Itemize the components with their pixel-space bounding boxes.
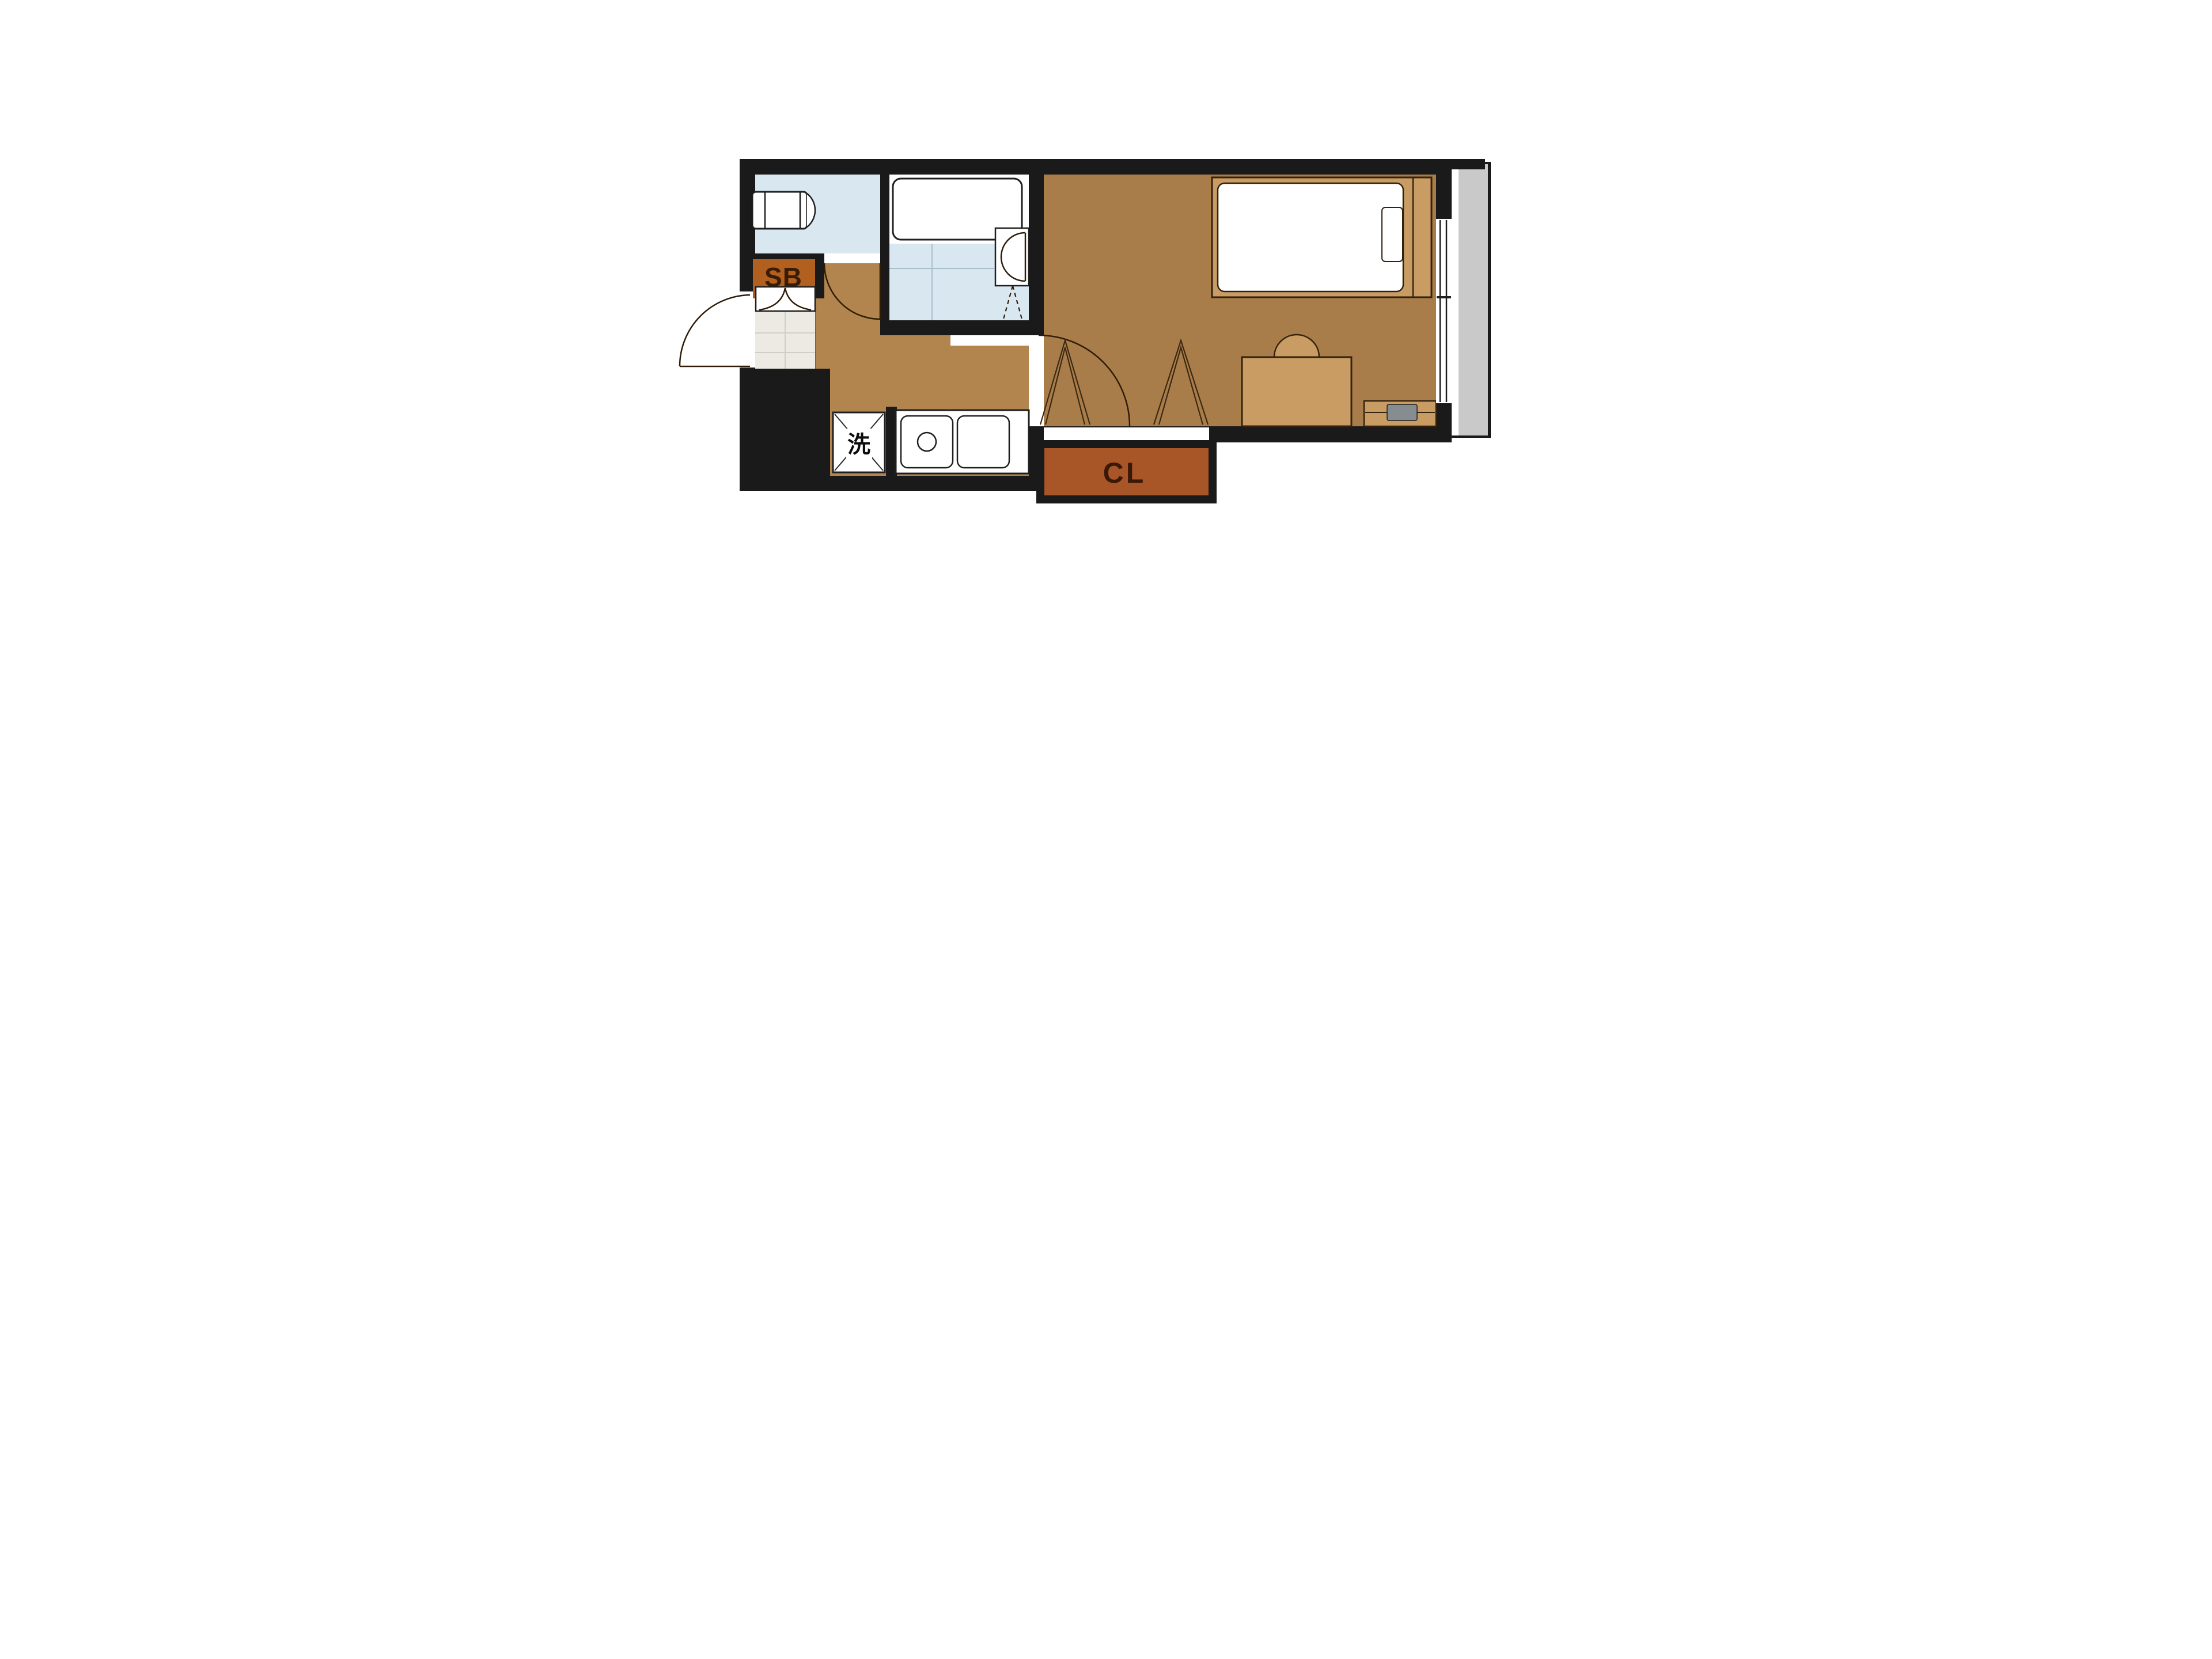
toilet-door-opening (824, 253, 880, 263)
mattress (1218, 183, 1403, 291)
bed (1212, 177, 1431, 297)
closet-label: CL (1103, 457, 1146, 489)
washing-machine-label: 洗 (847, 432, 870, 457)
toilet-tank (752, 192, 807, 229)
bath-threshold (950, 335, 1029, 346)
floor-plan-drawing: CL SB 洗 (664, 0, 1548, 664)
balcony (1459, 164, 1490, 437)
pillow (1382, 207, 1403, 262)
balcony-rail-bottom (1452, 435, 1491, 438)
closet-threshold (1044, 427, 1209, 440)
tv (1387, 404, 1417, 421)
window (1436, 219, 1452, 403)
desk (1242, 357, 1351, 426)
balcony-rail-right (1488, 162, 1491, 438)
kitchen-sink (957, 416, 1009, 468)
stove-burner-icon (918, 433, 936, 451)
floor-plan-page: CL SB 洗 (664, 0, 1548, 664)
room-doorway (1029, 335, 1044, 426)
tv-board (1364, 401, 1436, 426)
front-door-opening (740, 291, 755, 368)
